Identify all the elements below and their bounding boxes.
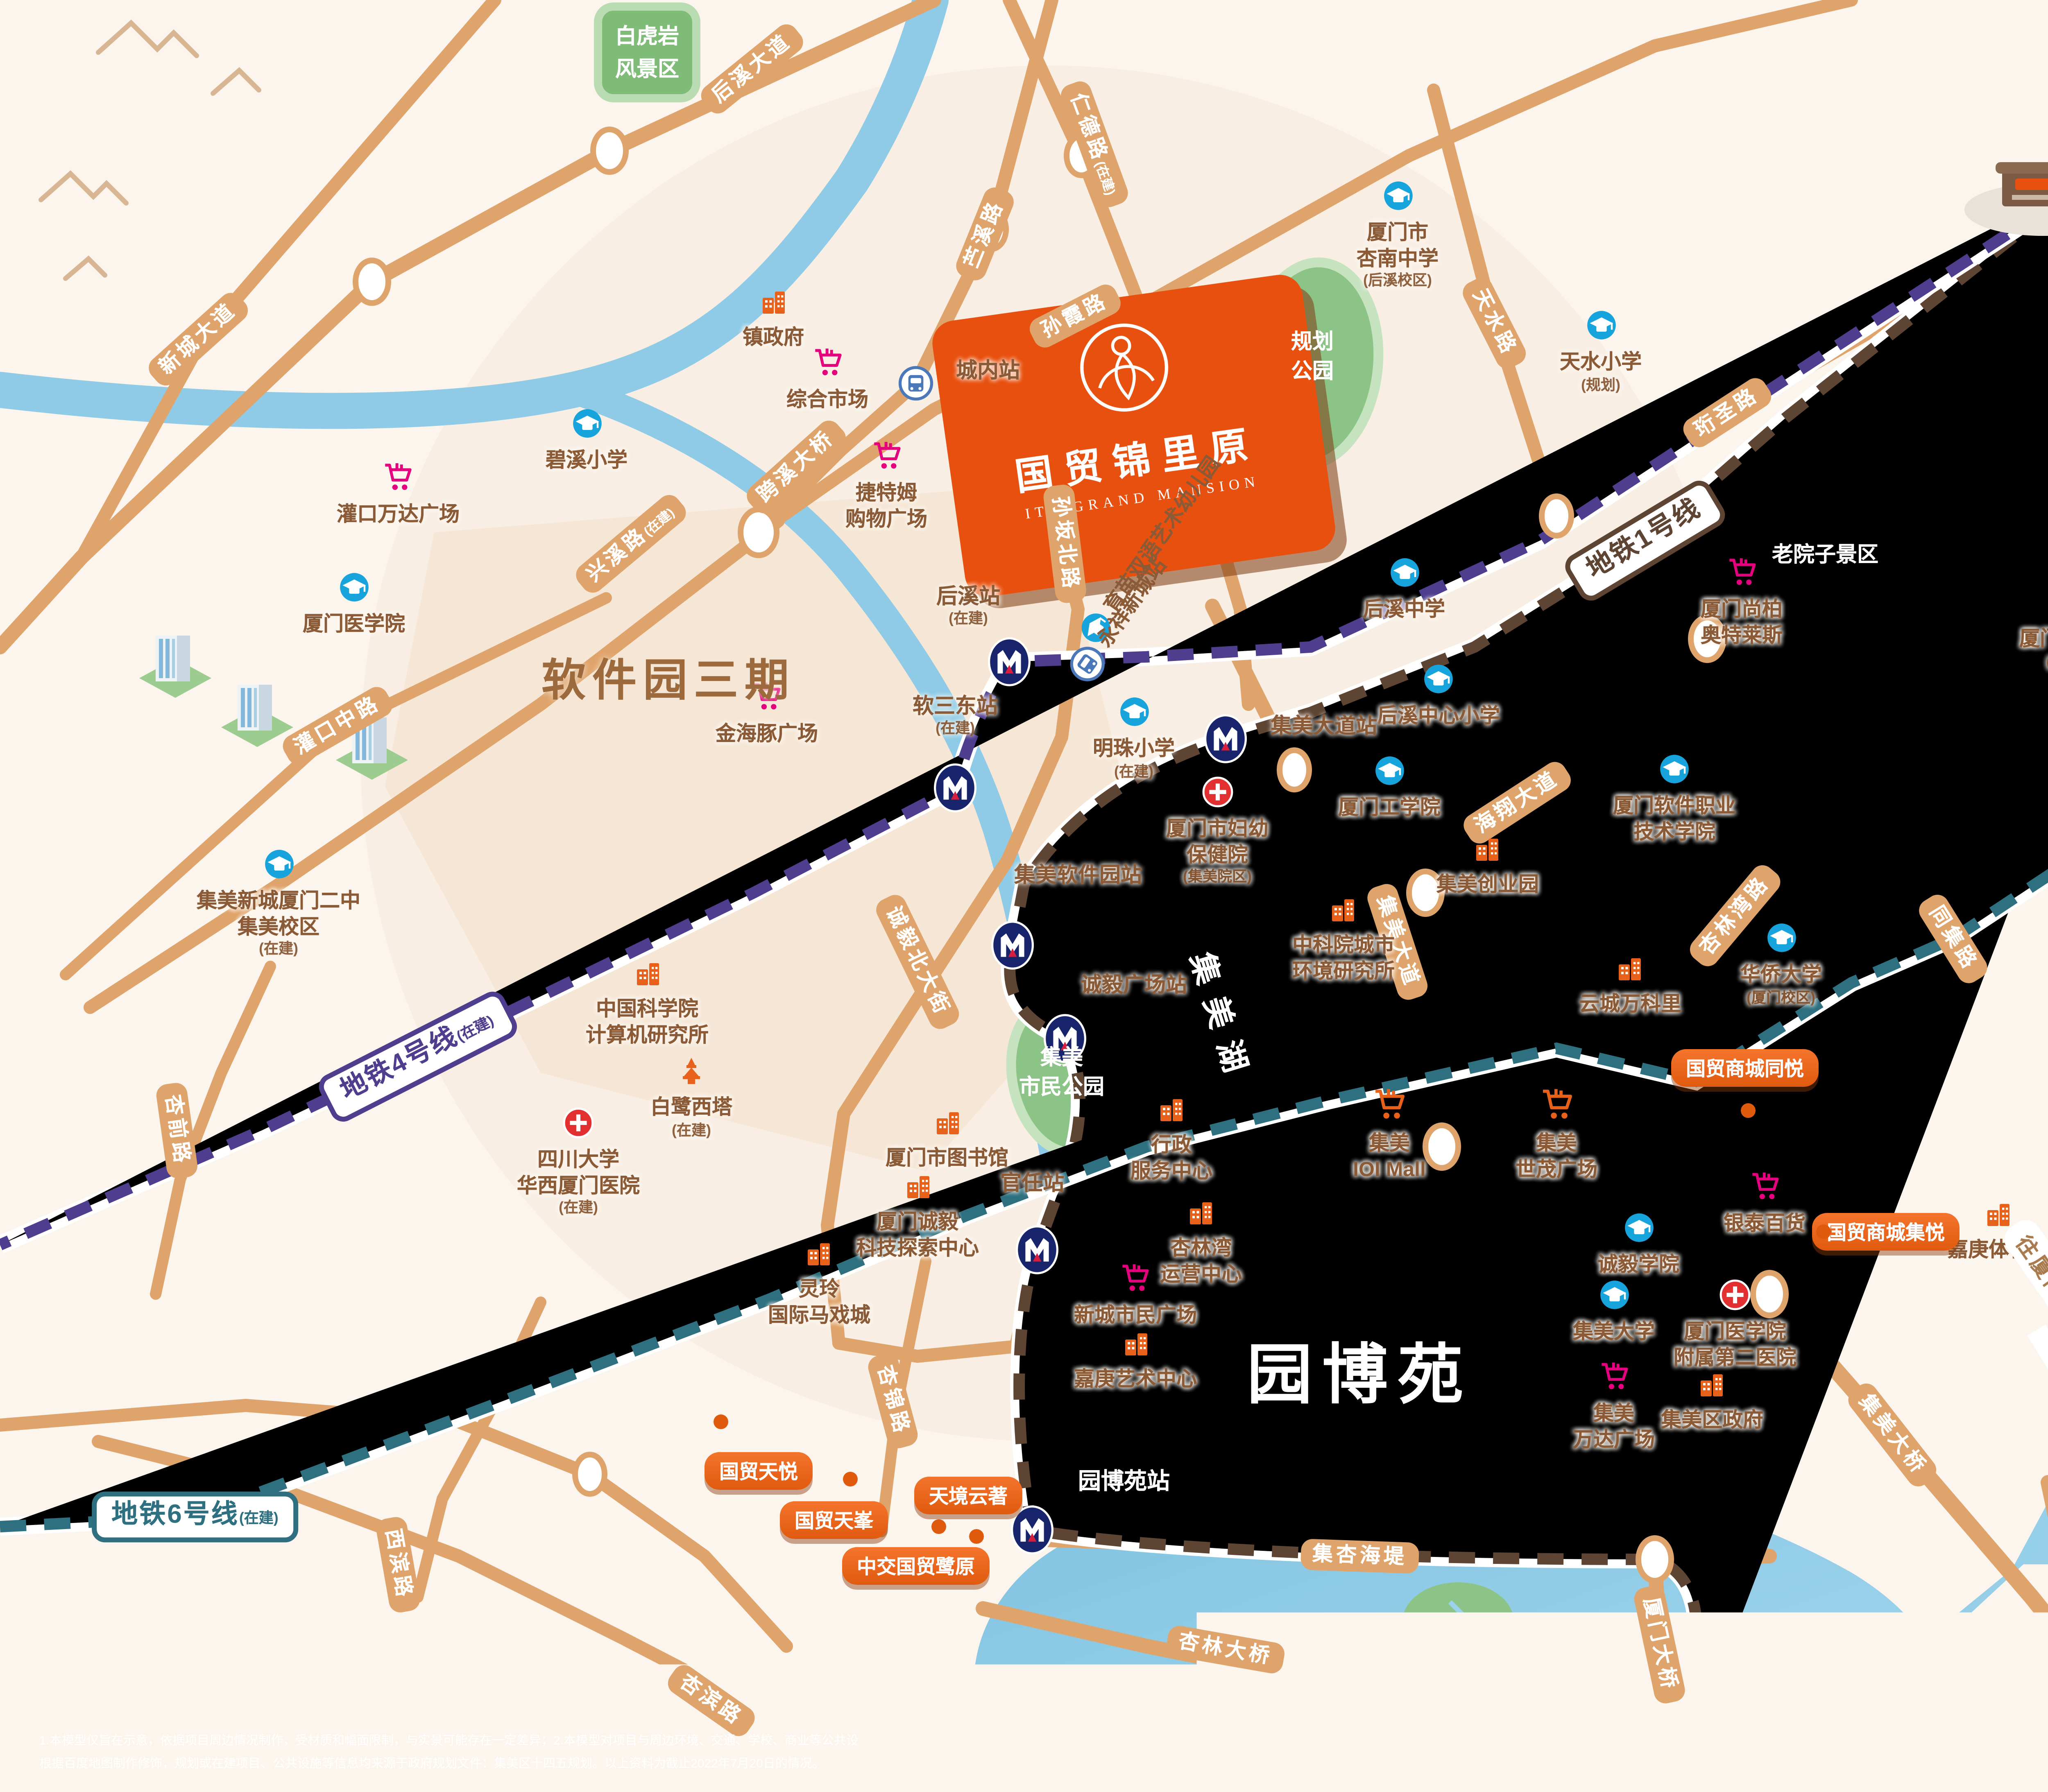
disclaimer: 1.本模型仅旨在示意，依据项目周边情况制作，受材质和幅面限制，与实景可能存在一定… <box>39 1730 2048 1776</box>
poi-捷特姆购物广场: 捷特姆购物广场 <box>845 441 927 532</box>
road-label-兴溪路: 兴溪路(在建) <box>571 491 690 597</box>
area-label-集美市民公园: 集美市民公园 <box>1019 1043 1104 1103</box>
poi-新城市民广场: 新城市民广场 <box>1074 1263 1197 1329</box>
bus-stop-label-城内站: 城内站 <box>956 360 1020 384</box>
station-label-集美大道站: 集美大道站 <box>1271 715 1377 740</box>
road-label-厦门大桥: 厦门大桥 <box>1632 1584 1687 1705</box>
hospital-icon <box>1166 776 1269 815</box>
station-label-诚毅广场站: 诚毅广场站 <box>1081 974 1187 998</box>
poi-灌口万达广场: 灌口万达广场 <box>337 462 460 528</box>
disclaimer-line: 1.本模型仅旨在示意，依据项目周边情况制作，受材质和幅面限制，与实景可能存在一定… <box>39 1730 2048 1753</box>
poi-综合市场: 综合市场 <box>786 347 868 414</box>
station-label-软三东站: 软三东站(在建) <box>913 695 998 736</box>
cartP-icon <box>845 441 927 479</box>
poi-白鹭西塔: 白鹭西塔(在建) <box>650 1057 732 1139</box>
school-icon <box>546 408 628 446</box>
cartP-icon <box>786 347 868 385</box>
cartP-icon <box>1573 1361 1655 1399</box>
poi-银泰百货: 银泰百货 <box>1724 1171 1806 1238</box>
project-badge-国贸商城同悦: 国贸商城同悦 <box>1671 1049 1819 1087</box>
poi-厦门尚柏奥特莱斯: 厦门尚柏奥特莱斯 <box>1701 557 1783 648</box>
road-label-跨溪大桥: 跨溪大桥 <box>742 416 851 518</box>
poi-厦门市图书馆: 厦门市图书馆 <box>886 1107 1008 1172</box>
poi-镇政府: 镇政府 <box>743 287 804 351</box>
road-label-灌口中路: 灌口中路 <box>279 683 396 768</box>
poi-厦门工学院: 厦门工学院 <box>1338 755 1441 821</box>
station-label-后溪站: 后溪站(在建) <box>936 585 1000 627</box>
road-label-孙霞路: 孙霞路 <box>1026 281 1124 351</box>
poi-厦门医学院: 厦门医学院 <box>303 572 405 638</box>
map-labels-layer: 后溪大道新城大道苎溪路仁德路(在建)孙霞路孙坂北路跨溪大桥兴溪路(在建)灌口中路… <box>0 0 2048 1792</box>
poi-四川大学华西厦门医院: 四川大学华西厦门医院(在建) <box>517 1107 640 1217</box>
building-icon <box>1292 894 1395 931</box>
project-badge-国贸商城集悦: 国贸商城集悦 <box>1812 1213 1960 1251</box>
road-label-杏前路: 杏前路 <box>155 1082 199 1179</box>
school-icon <box>1338 755 1441 793</box>
road-label-后溪大道: 后溪大道 <box>696 20 807 118</box>
poi-集美创业园: 集美创业园 <box>1436 834 1539 898</box>
poi-厦门医学院附属第二医院: 厦门医学院附属第二医院 <box>1674 1279 1797 1371</box>
road-label-杏林大桥: 杏林大桥 <box>1165 1624 1287 1675</box>
map-scaler: 国贸锦里原 ITG GRAND MANSION 后溪大道新城大道苎溪路仁德路(在… <box>0 0 2048 1792</box>
poi-厦门软件职业技术学院: 厦门软件职业技术学院 <box>1613 753 1736 845</box>
school-icon <box>1357 180 1439 218</box>
road-label-天水路: 天水路 <box>1459 274 1529 371</box>
road-label-集美大桥: 集美大桥 <box>1844 1379 1941 1491</box>
poi-后溪中学: 后溪中学 <box>1363 557 1445 623</box>
poi-行政服务中心: 行政服务中心 <box>1130 1094 1212 1184</box>
project-dot <box>931 1519 946 1534</box>
road-label-杏滨路: 杏滨路 <box>664 1661 759 1740</box>
poi-集美世茂广场: 集美世茂广场 <box>1516 1088 1597 1182</box>
poi-集美IOI Mall: 集美IOI Mall <box>1353 1088 1426 1182</box>
poi-明珠小学: 明珠小学(在建) <box>1093 696 1175 781</box>
school-icon <box>1377 663 1500 701</box>
building-icon <box>856 1171 979 1208</box>
poi-厦门理工学院: 厦门理工学院(集美校区) <box>2019 586 2048 671</box>
building-icon <box>886 1107 1008 1144</box>
project-dot <box>1741 1103 1756 1118</box>
project-badge-天境云著: 天境云著 <box>914 1477 1022 1514</box>
poi-厦门市妇幼保健院: 厦门市妇幼保健院(集美院区) <box>1166 776 1269 886</box>
school-icon <box>1560 310 1642 348</box>
school-icon <box>303 572 405 610</box>
building-icon <box>1579 953 1681 990</box>
area-label-老院子景区: 老院子景区 <box>1772 541 1878 570</box>
project-badge-国贸天悦: 国贸天悦 <box>705 1452 813 1490</box>
building-icon <box>1074 1328 1197 1365</box>
metro-logo-icon <box>988 637 1031 686</box>
disclaimer-line: 根据百度地图制作修饰，规划或在建项目、公共设施等信息均来源于政府规划文件：集美区… <box>39 1753 2048 1776</box>
school-icon <box>1740 922 1822 960</box>
metro-line-badge-地铁4号线: 地铁4号线(在建) <box>315 987 521 1126</box>
building-icon <box>1661 1369 1763 1406</box>
poi-华侨大学: 华侨大学(厦门校区) <box>1740 922 1822 1007</box>
poi-灵玲国际马戏城: 灵玲国际马戏城 <box>768 1238 870 1328</box>
area-label-集美湖: 集美湖 <box>1181 947 1264 1091</box>
poi-中科院城市环境研究所: 中科院城市环境研究所 <box>1292 894 1395 984</box>
school-icon <box>1597 1212 1679 1250</box>
road-label-仁德路: 仁德路(在建) <box>1058 78 1131 210</box>
poi-集美新城厦门二中集美校区: 集美新城厦门二中集美校区(在建) <box>197 848 360 958</box>
poi-嘉庚艺术中心: 嘉庚艺术中心 <box>1074 1328 1197 1393</box>
road-label-杏锦路: 杏锦路 <box>866 1351 920 1450</box>
cartP-icon <box>1074 1263 1197 1301</box>
station-label-集美软件园站: 集美软件园站 <box>1014 864 1142 889</box>
cartO-icon <box>1353 1088 1426 1129</box>
bus-icon <box>898 365 940 414</box>
project-badge-国贸天峯: 国贸天峯 <box>780 1501 888 1539</box>
school-icon <box>2019 586 2048 624</box>
hospital-icon <box>1674 1279 1797 1317</box>
hospital-icon <box>517 1107 640 1145</box>
poi-中国科学院计算机研究所: 中国科学院计算机研究所 <box>586 958 709 1048</box>
metro-logo-icon <box>1204 714 1247 763</box>
metro-logo-icon <box>934 763 976 812</box>
bus-icon <box>1063 639 1117 692</box>
station-label-官任站: 官任站 <box>1000 1172 1064 1197</box>
road-label-苎溪路: 苎溪路 <box>953 185 1017 284</box>
school-icon <box>1093 696 1175 734</box>
poi-厦门诚毅科技探索中心: 厦门诚毅科技探索中心 <box>856 1171 979 1261</box>
area-label-软件园三期: 软件园三期 <box>541 645 795 708</box>
school-icon <box>1613 753 1736 792</box>
building-icon <box>743 287 804 323</box>
poi-厦门市杏南中学: 厦门市杏南中学(后溪校区) <box>1357 180 1439 290</box>
poi-集美万达广场: 集美万达广场 <box>1573 1361 1655 1453</box>
cartP-icon <box>337 462 460 500</box>
poi-诚毅学院: 诚毅学院 <box>1597 1212 1679 1278</box>
poi-天水小学: 天水小学(规划) <box>1560 310 1642 394</box>
location-map: 国贸锦里原 ITG GRAND MANSION 后溪大道新城大道苎溪路仁德路(在… <box>0 0 2048 1792</box>
project-badge-中交国贸鹭原: 中交国贸鹭原 <box>842 1547 990 1585</box>
road-label-西滨路: 西滨路 <box>375 1515 421 1613</box>
area-label-白虎岩风景区: 白虎岩风景区 <box>594 2 700 102</box>
school-icon <box>1573 1279 1655 1317</box>
building-icon <box>1130 1094 1212 1131</box>
poi-集美区政府: 集美区政府 <box>1661 1369 1763 1434</box>
building-icon <box>1160 1197 1242 1234</box>
road-label-集杏海堤: 集杏海堤 <box>1300 1539 1420 1574</box>
poi-后溪中心小学: 后溪中心小学 <box>1377 663 1500 730</box>
building-icon <box>586 958 709 995</box>
project-dot <box>1816 1224 1831 1239</box>
area-label-园博苑: 园博苑 <box>1247 1322 1473 1417</box>
road-label-同集路: 同集路 <box>1915 890 1991 987</box>
school-icon <box>197 848 360 887</box>
project-dot <box>969 1529 984 1544</box>
station-label-园博苑站: 园博苑站 <box>1078 1468 1170 1494</box>
poi-碧溪小学: 碧溪小学 <box>546 408 628 474</box>
cartP-icon <box>1701 557 1783 595</box>
building-icon <box>768 1238 870 1275</box>
metro-logo-icon <box>991 921 1034 970</box>
cartO-icon <box>1516 1088 1597 1129</box>
road-label-珩圣路: 珩圣路 <box>1679 374 1775 452</box>
school-icon <box>1363 557 1445 595</box>
tower-icon <box>650 1057 732 1093</box>
area-label-往厦门方向: 往厦门方向 <box>1999 1214 2048 1361</box>
road-label-诚毅北大街: 诚毅北大街 <box>872 891 963 1032</box>
metro-line-badge-地铁6号线: 地铁6号线(在建) <box>92 1491 298 1542</box>
poi-集美大学: 集美大学 <box>1573 1279 1655 1346</box>
project-dot <box>714 1414 728 1429</box>
metro-logo-icon <box>1011 1505 1053 1554</box>
area-label-规划公园: 规划公园 <box>1291 327 1334 387</box>
building-icon <box>1436 834 1539 870</box>
road-label-孙坂北路: 孙坂北路 <box>1042 483 1087 604</box>
poi-云城万科里: 云城万科里 <box>1579 953 1681 1018</box>
metro-logo-icon <box>1016 1225 1058 1274</box>
cartP-icon <box>1724 1171 1806 1209</box>
project-dot <box>843 1472 858 1487</box>
road-label-新城大道: 新城大道 <box>144 288 253 390</box>
